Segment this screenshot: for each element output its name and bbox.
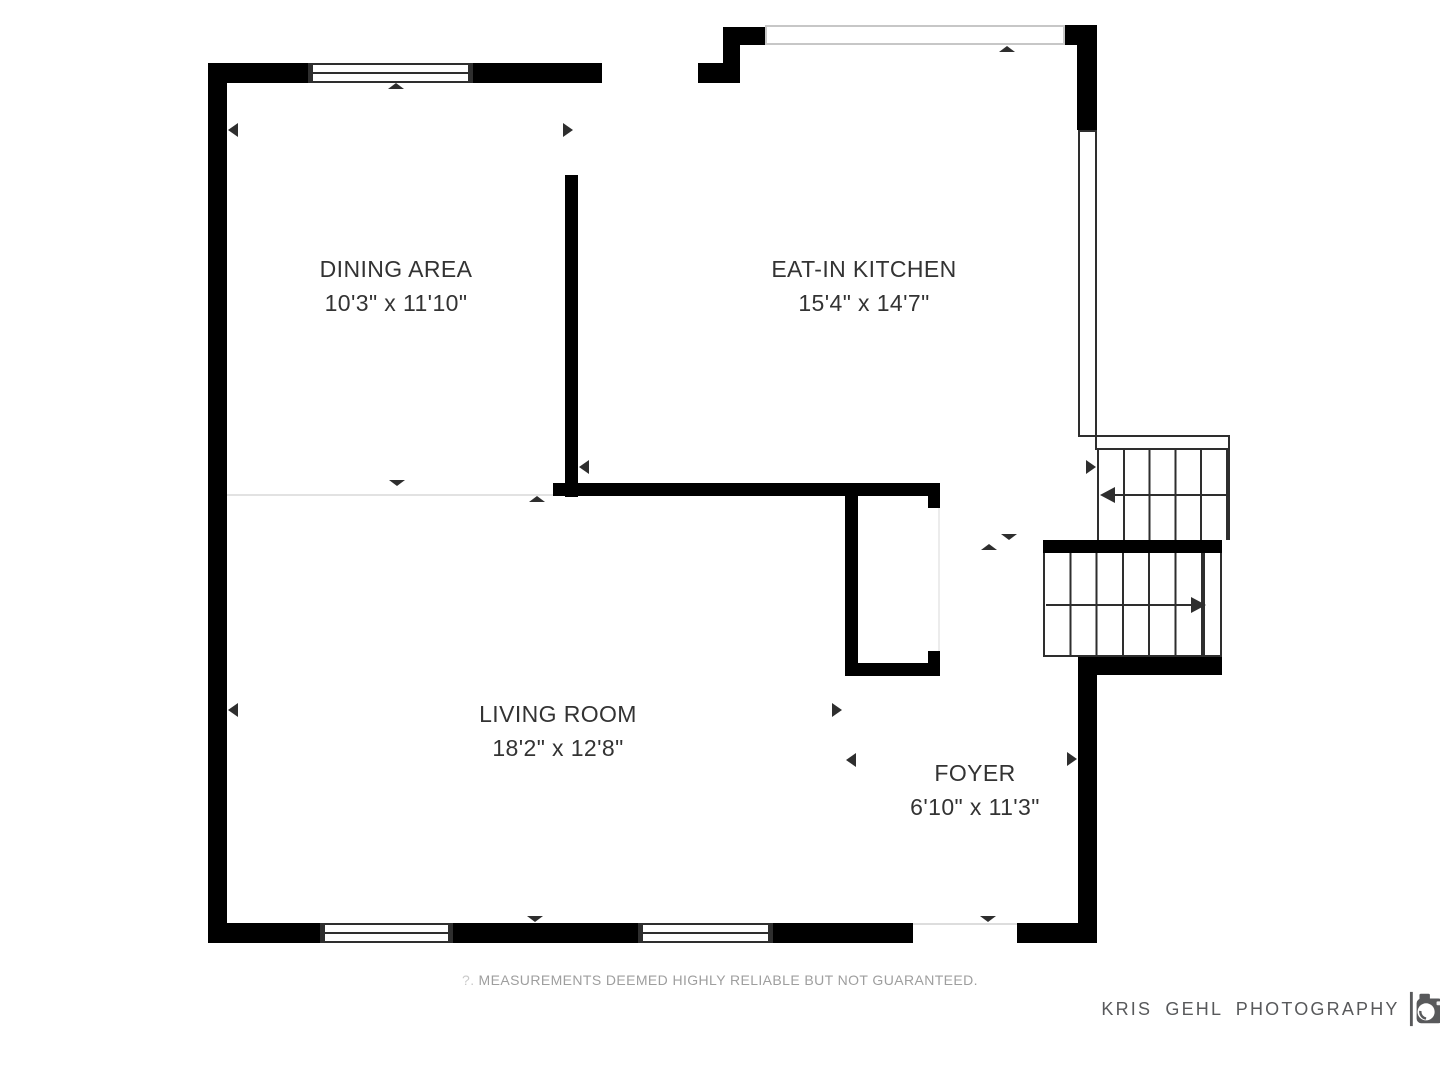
wall-kitchen-corner-right — [1077, 25, 1097, 130]
room-label-living: LIVING ROOM 18'2" x 12'8" — [408, 697, 708, 765]
room-name: FOYER — [825, 756, 1125, 790]
wall-bottom-segment-1 — [208, 923, 320, 943]
floor-plan: DINING AREA 10'3" x 11'10" EAT-IN KITCHE… — [0, 0, 1440, 1080]
kitchen-top-window — [765, 25, 1065, 45]
room-label-foyer: FOYER 6'10" x 11'3" — [825, 756, 1125, 824]
marker-living-height-bottom — [527, 916, 543, 922]
wall-left-exterior — [208, 63, 227, 943]
marker-foyer-height-bottom — [980, 916, 996, 922]
closet-jamb-top — [928, 496, 940, 508]
room-name: DINING AREA — [246, 252, 546, 286]
wall-closet-bottom — [845, 663, 940, 676]
photographer-logo: KRIS GEHL PHOTOGRAPHY — [1108, 960, 1440, 1058]
dining-living-divider-line — [227, 494, 553, 496]
marker-living-width-right — [832, 703, 842, 717]
marker-kitchen-width-left — [579, 460, 589, 474]
room-dimensions: 6'10" x 11'3" — [825, 790, 1125, 824]
wall-step-vertical — [723, 27, 740, 83]
wall-top-upper-segment — [740, 27, 765, 45]
stairs-lower-arrow-line — [1046, 604, 1193, 606]
measurement-disclaimer: ?.MEASUREMENTS DEEMED HIGHLY RELIABLE BU… — [420, 972, 1020, 988]
wall-top-segment-1 — [208, 63, 308, 83]
marker-living-width-left — [228, 703, 238, 717]
wall-interior-horizontal — [553, 483, 940, 496]
disclaimer-prefix: ?. — [462, 972, 474, 988]
room-dimensions: 18'2" x 12'8" — [408, 731, 708, 765]
marker-dining-height-bottom — [389, 480, 405, 486]
marker-kitchen-height-bottom — [1001, 534, 1017, 540]
dining-window — [308, 63, 473, 83]
marker-living-height-top — [529, 496, 545, 502]
stairs-half-wall — [1095, 435, 1230, 450]
marker-foyer-height-top — [981, 544, 997, 550]
kitchen-right-window — [1078, 130, 1097, 437]
stairs-down-arrow-icon — [1191, 597, 1206, 613]
marker-kitchen-width-right — [1086, 460, 1096, 474]
wall-bottom-segment-3 — [773, 923, 913, 943]
room-dimensions: 15'4" x 14'7" — [714, 286, 1014, 320]
room-name: LIVING ROOM — [408, 697, 708, 731]
marker-dining-height-top — [388, 83, 404, 89]
wall-top-segment-2 — [473, 63, 602, 83]
closet-opening-line — [938, 508, 940, 651]
camera-icon — [1409, 990, 1440, 1028]
room-dimensions: 10'3" x 11'10" — [246, 286, 546, 320]
stairs-upper-arrow-line — [1112, 494, 1230, 496]
stairs-up-arrow-icon — [1100, 487, 1115, 503]
marker-dining-width-right — [563, 123, 573, 137]
marker-dining-width-left — [228, 123, 238, 137]
photographer-name: KRIS GEHL PHOTOGRAPHY — [1101, 999, 1399, 1020]
entry-door-threshold — [913, 923, 1017, 925]
marker-kitchen-height-top — [999, 46, 1015, 52]
wall-bottom-segment-2 — [453, 923, 638, 943]
closet-jamb-bottom — [928, 651, 940, 663]
wall-stairs-middle — [1043, 540, 1222, 553]
disclaimer-text: MEASUREMENTS DEEMED HIGHLY RELIABLE BUT … — [479, 972, 978, 988]
room-label-dining: DINING AREA 10'3" x 11'10" — [246, 252, 546, 320]
wall-dining-kitchen-divider — [565, 175, 578, 497]
wall-closet-left — [845, 496, 858, 676]
room-label-kitchen: EAT-IN KITCHEN 15'4" x 14'7" — [714, 252, 1014, 320]
wall-stairs-bottom — [1078, 657, 1222, 675]
room-name: EAT-IN KITCHEN — [714, 252, 1014, 286]
living-window-right — [638, 923, 773, 943]
living-window-left — [320, 923, 453, 943]
